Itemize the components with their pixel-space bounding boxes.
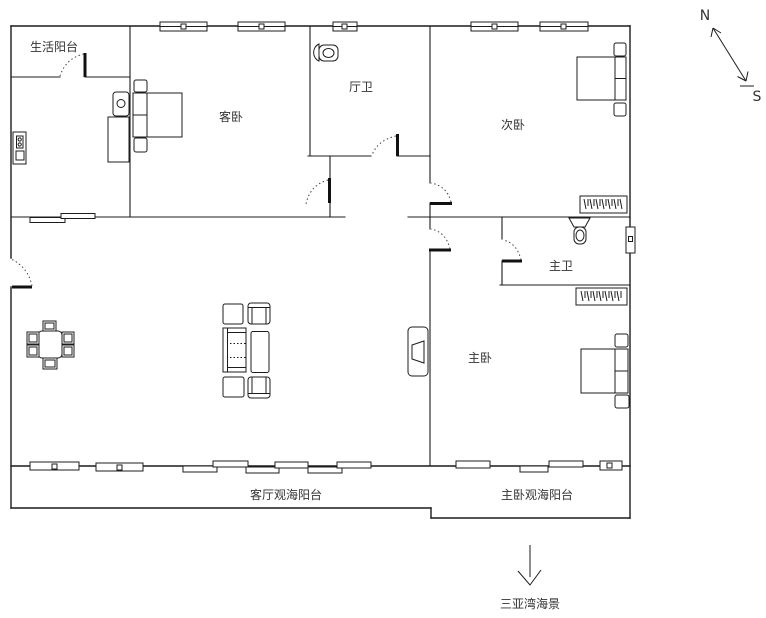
guest-bedroom-door (306, 178, 330, 204)
tv-icon (412, 341, 424, 363)
interior-walls (11, 26, 630, 466)
compass-arrow-icon (711, 28, 754, 86)
sliding-window (246, 462, 308, 473)
window (471, 22, 518, 31)
side-table (223, 377, 244, 397)
nightstand (134, 80, 147, 92)
nightstand (615, 395, 629, 408)
window (238, 22, 285, 31)
room-labels: 生活阳台 客卧 厅卫 次卧 主卫 主卧 客厅观海阳台 主卧观海阳台 (30, 39, 573, 502)
nightstand (615, 334, 628, 347)
down-arrow-icon (518, 545, 541, 585)
sliding-window (308, 462, 371, 473)
master-toilet-icon (569, 218, 590, 244)
floor-plan: 生活阳台 客卧 厅卫 次卧 主卫 主卧 客厅观海阳台 主卧观海阳台 N S 三亚… (0, 0, 766, 618)
bed-mattress (577, 57, 615, 100)
dining-chair (27, 332, 39, 344)
sliding-window (183, 461, 248, 472)
window (600, 461, 622, 470)
sliding-window (456, 461, 583, 472)
nightstand (614, 43, 626, 56)
water-heater (626, 227, 635, 253)
bed-mattress (581, 349, 615, 393)
dining-chair (27, 345, 39, 357)
side-table (223, 304, 243, 324)
master-bathroom-door (502, 240, 522, 261)
room-label-life-balcony: 生活阳台 (30, 39, 78, 54)
room-label-master-view-balcony: 主卧观海阳台 (501, 487, 573, 502)
door-swing-arc (60, 54, 84, 76)
kitchen-sliding-door (30, 214, 95, 223)
window (160, 22, 207, 31)
bed-mattress (147, 93, 182, 137)
sofa (223, 328, 246, 372)
compass: N S (700, 8, 762, 105)
armchair (248, 377, 270, 398)
dining-chair (43, 321, 56, 331)
door-swing-arc (11, 259, 32, 286)
tv-cabinet (408, 327, 428, 376)
compass-south-label: S (753, 89, 762, 105)
room-label-living-view-balcony: 客厅观海阳台 (250, 487, 322, 502)
armchair (248, 303, 270, 324)
dining-table (38, 331, 62, 358)
room-label-guest-bedroom: 客卧 (219, 109, 243, 124)
door-swing-arc (503, 240, 521, 260)
window (96, 463, 143, 471)
second-bed (577, 43, 626, 116)
nightstand (614, 103, 626, 116)
room-label-master-bedroom: 主卧 (468, 351, 492, 365)
nightstand (134, 138, 147, 152)
door-swing-arc (306, 180, 328, 204)
life-balcony-door (60, 53, 85, 77)
second-bedroom-wardrobe (580, 196, 627, 213)
coffee-table (251, 332, 269, 373)
sea-view-caption: 三亚湾海景 (500, 596, 560, 611)
compass-north-label: N (700, 8, 710, 24)
guest-bed (133, 80, 182, 152)
dining-chair (62, 345, 74, 357)
entrance-door (11, 259, 32, 287)
hall-toilet-icon (314, 44, 338, 61)
window (333, 22, 357, 31)
kitchen-sink (113, 92, 129, 116)
hall-bathroom-door (372, 134, 398, 156)
master-bed (581, 334, 629, 408)
master-bedroom-door (429, 229, 451, 250)
door-swing-arc (372, 136, 396, 155)
sea-view-annotation: 三亚湾海景 (500, 545, 560, 611)
door-swing-arc (431, 229, 450, 249)
dining-set (27, 321, 74, 369)
south-windows (30, 461, 622, 473)
room-label-master-bathroom: 主卫 (549, 259, 573, 273)
window (30, 462, 79, 470)
room-label-second-bedroom: 次卧 (501, 118, 525, 132)
kitchen-counter (108, 117, 129, 162)
master-bedroom-wardrobe (576, 288, 627, 305)
window (540, 22, 588, 31)
dining-chair (62, 332, 74, 344)
room-label-hall-bathroom: 厅卫 (349, 80, 373, 94)
sofa-set (223, 303, 270, 398)
outer-walls (11, 26, 630, 518)
dining-chair (43, 358, 57, 369)
second-bedroom-door (430, 183, 452, 204)
washing-machine (13, 132, 26, 164)
door-swing-arc (431, 183, 451, 202)
